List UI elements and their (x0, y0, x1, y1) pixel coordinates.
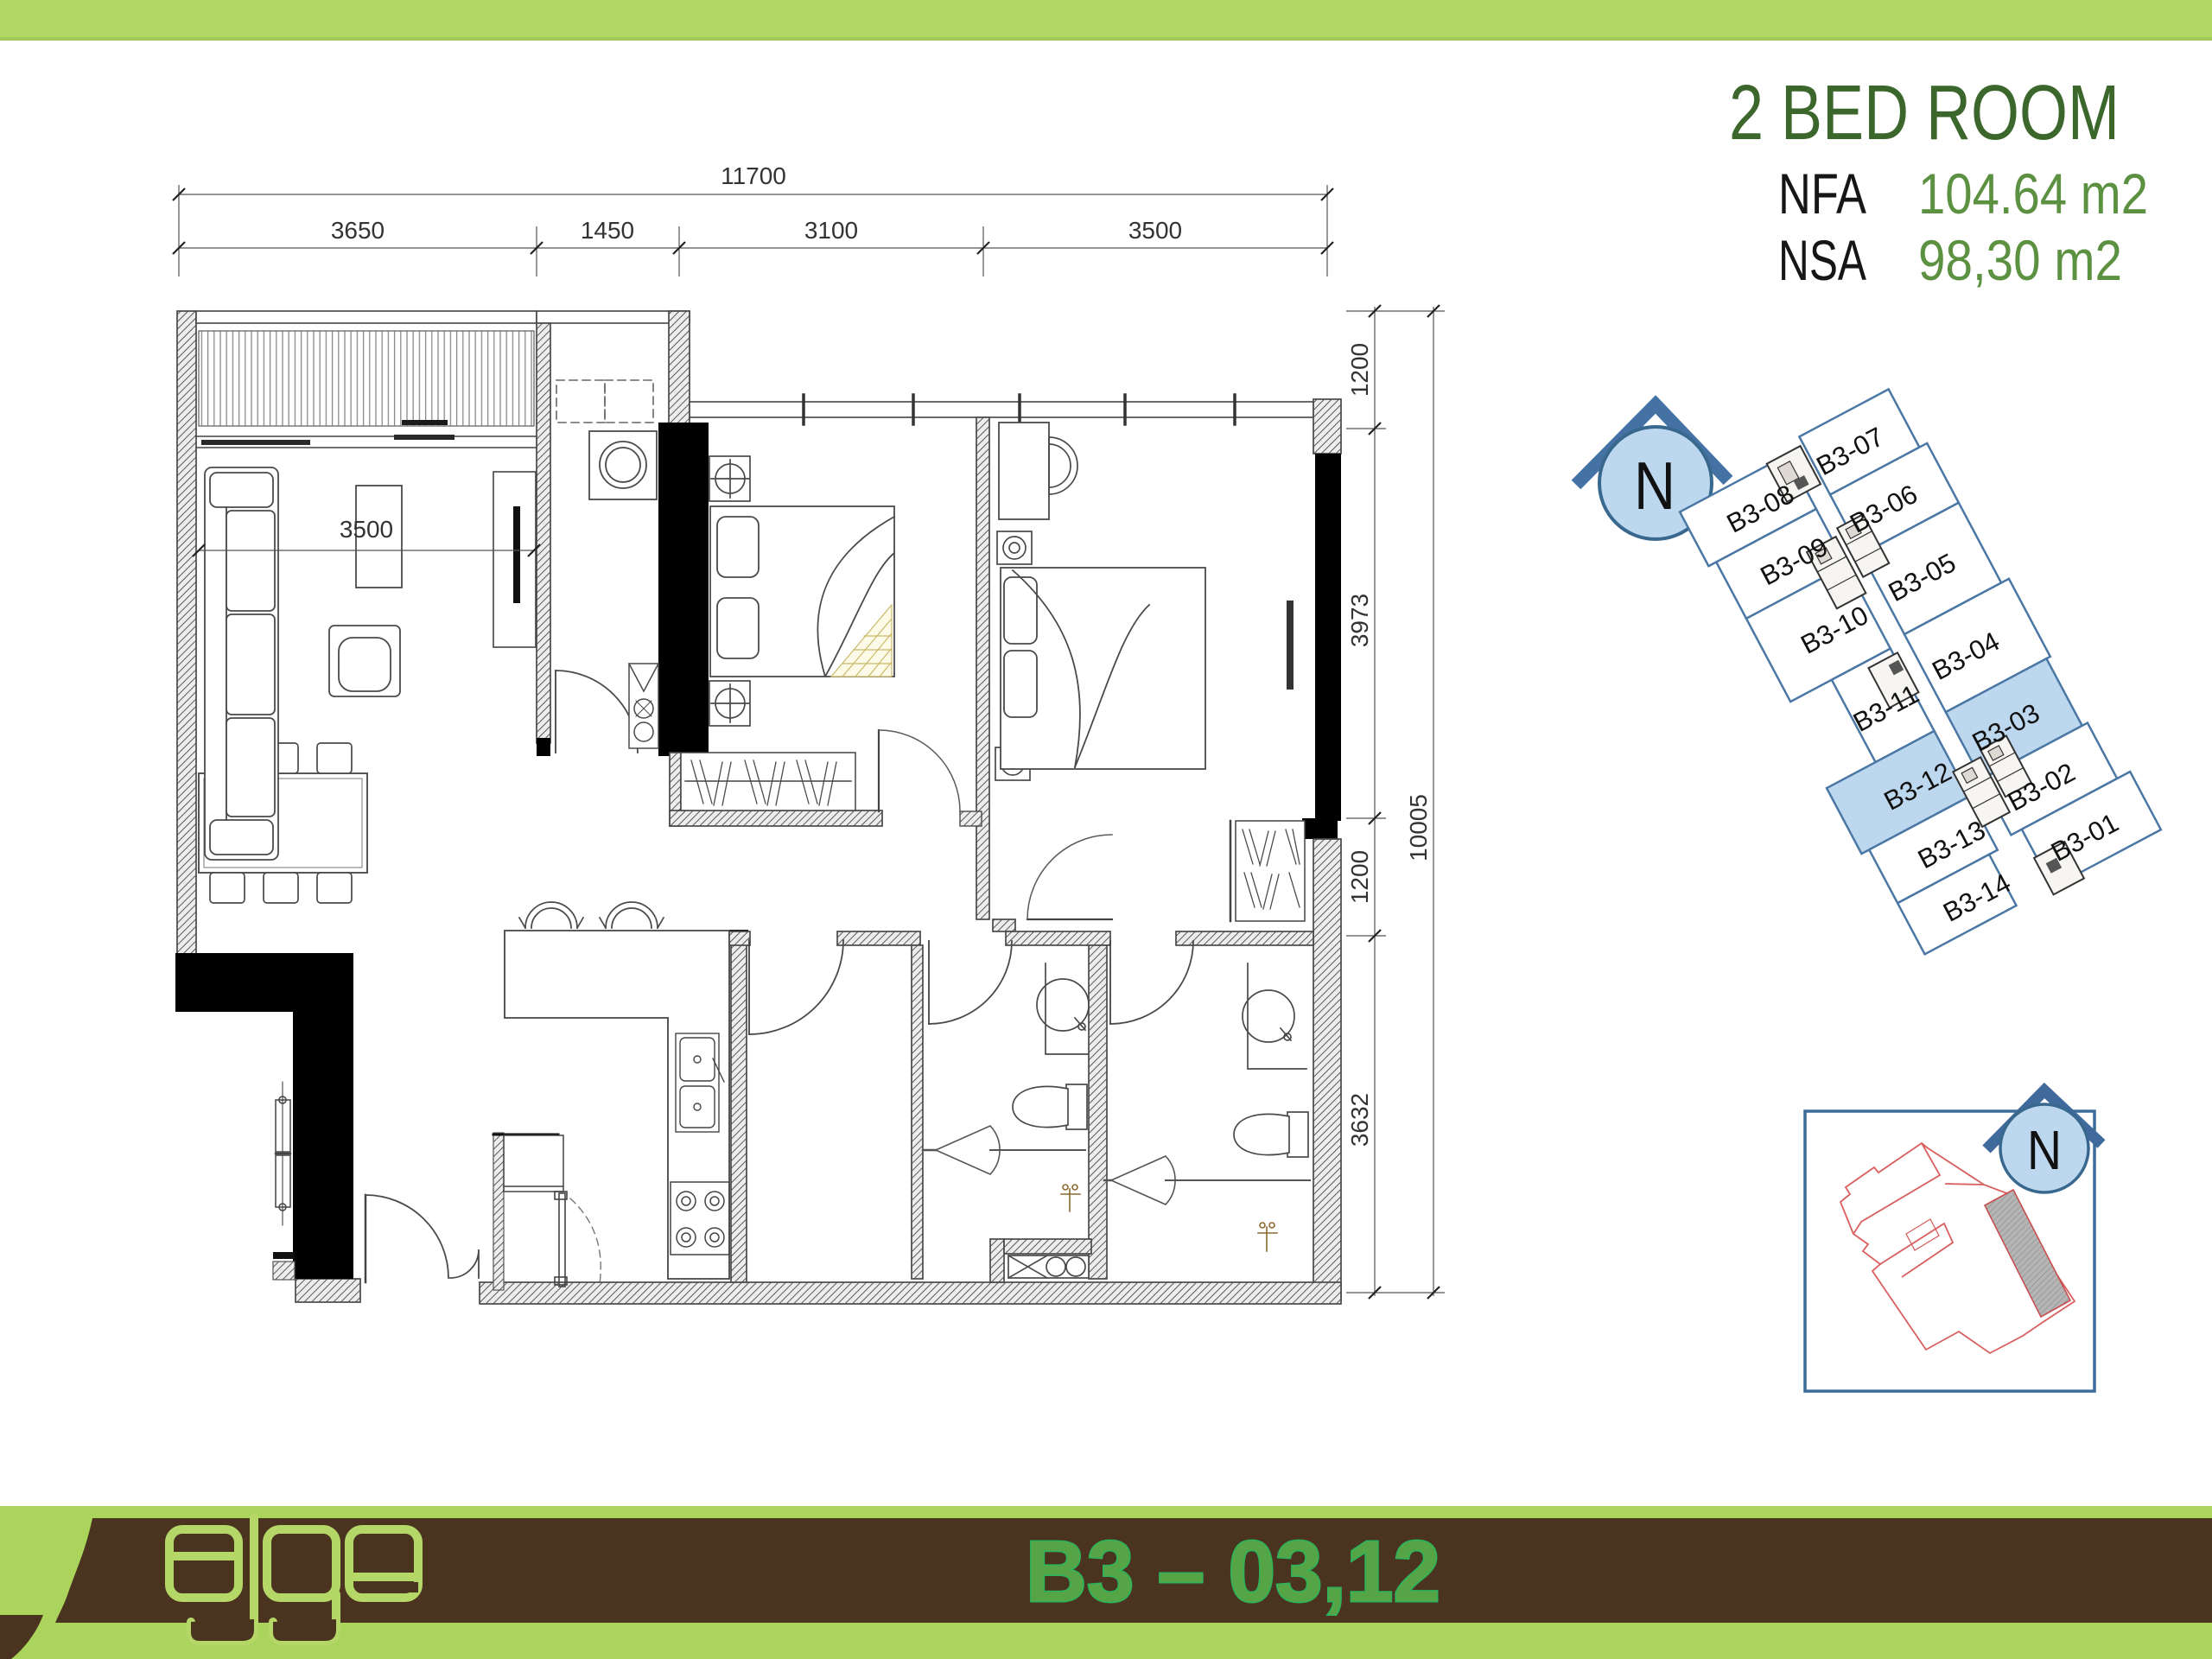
svg-text:11700: 11700 (721, 162, 786, 189)
svg-text:10005: 10005 (1405, 794, 1432, 861)
svg-text:3973: 3973 (1346, 594, 1373, 647)
svg-text:3632: 3632 (1346, 1093, 1373, 1147)
svg-text:3650: 3650 (331, 217, 385, 244)
svg-text:2 BED ROOM: 2 BED ROOM (1729, 70, 2120, 156)
svg-text:1450: 1450 (581, 217, 634, 244)
svg-text:1200: 1200 (1346, 343, 1373, 397)
svg-text:N: N (1634, 448, 1675, 524)
svg-text:1200: 1200 (1346, 850, 1373, 904)
svg-text:NSA: NSA (1778, 228, 1866, 292)
svg-text:3500: 3500 (340, 516, 393, 543)
svg-text:N: N (2027, 1119, 2062, 1181)
svg-text:B3 – 03,12: B3 – 03,12 (1026, 1523, 1440, 1620)
svg-text:98,30 m2: 98,30 m2 (1918, 228, 2122, 292)
svg-text:NFA: NFA (1778, 162, 1866, 226)
svg-text:104.64 m2: 104.64 m2 (1918, 162, 2148, 226)
svg-text:3100: 3100 (804, 217, 858, 244)
svg-text:3500: 3500 (1128, 217, 1182, 244)
